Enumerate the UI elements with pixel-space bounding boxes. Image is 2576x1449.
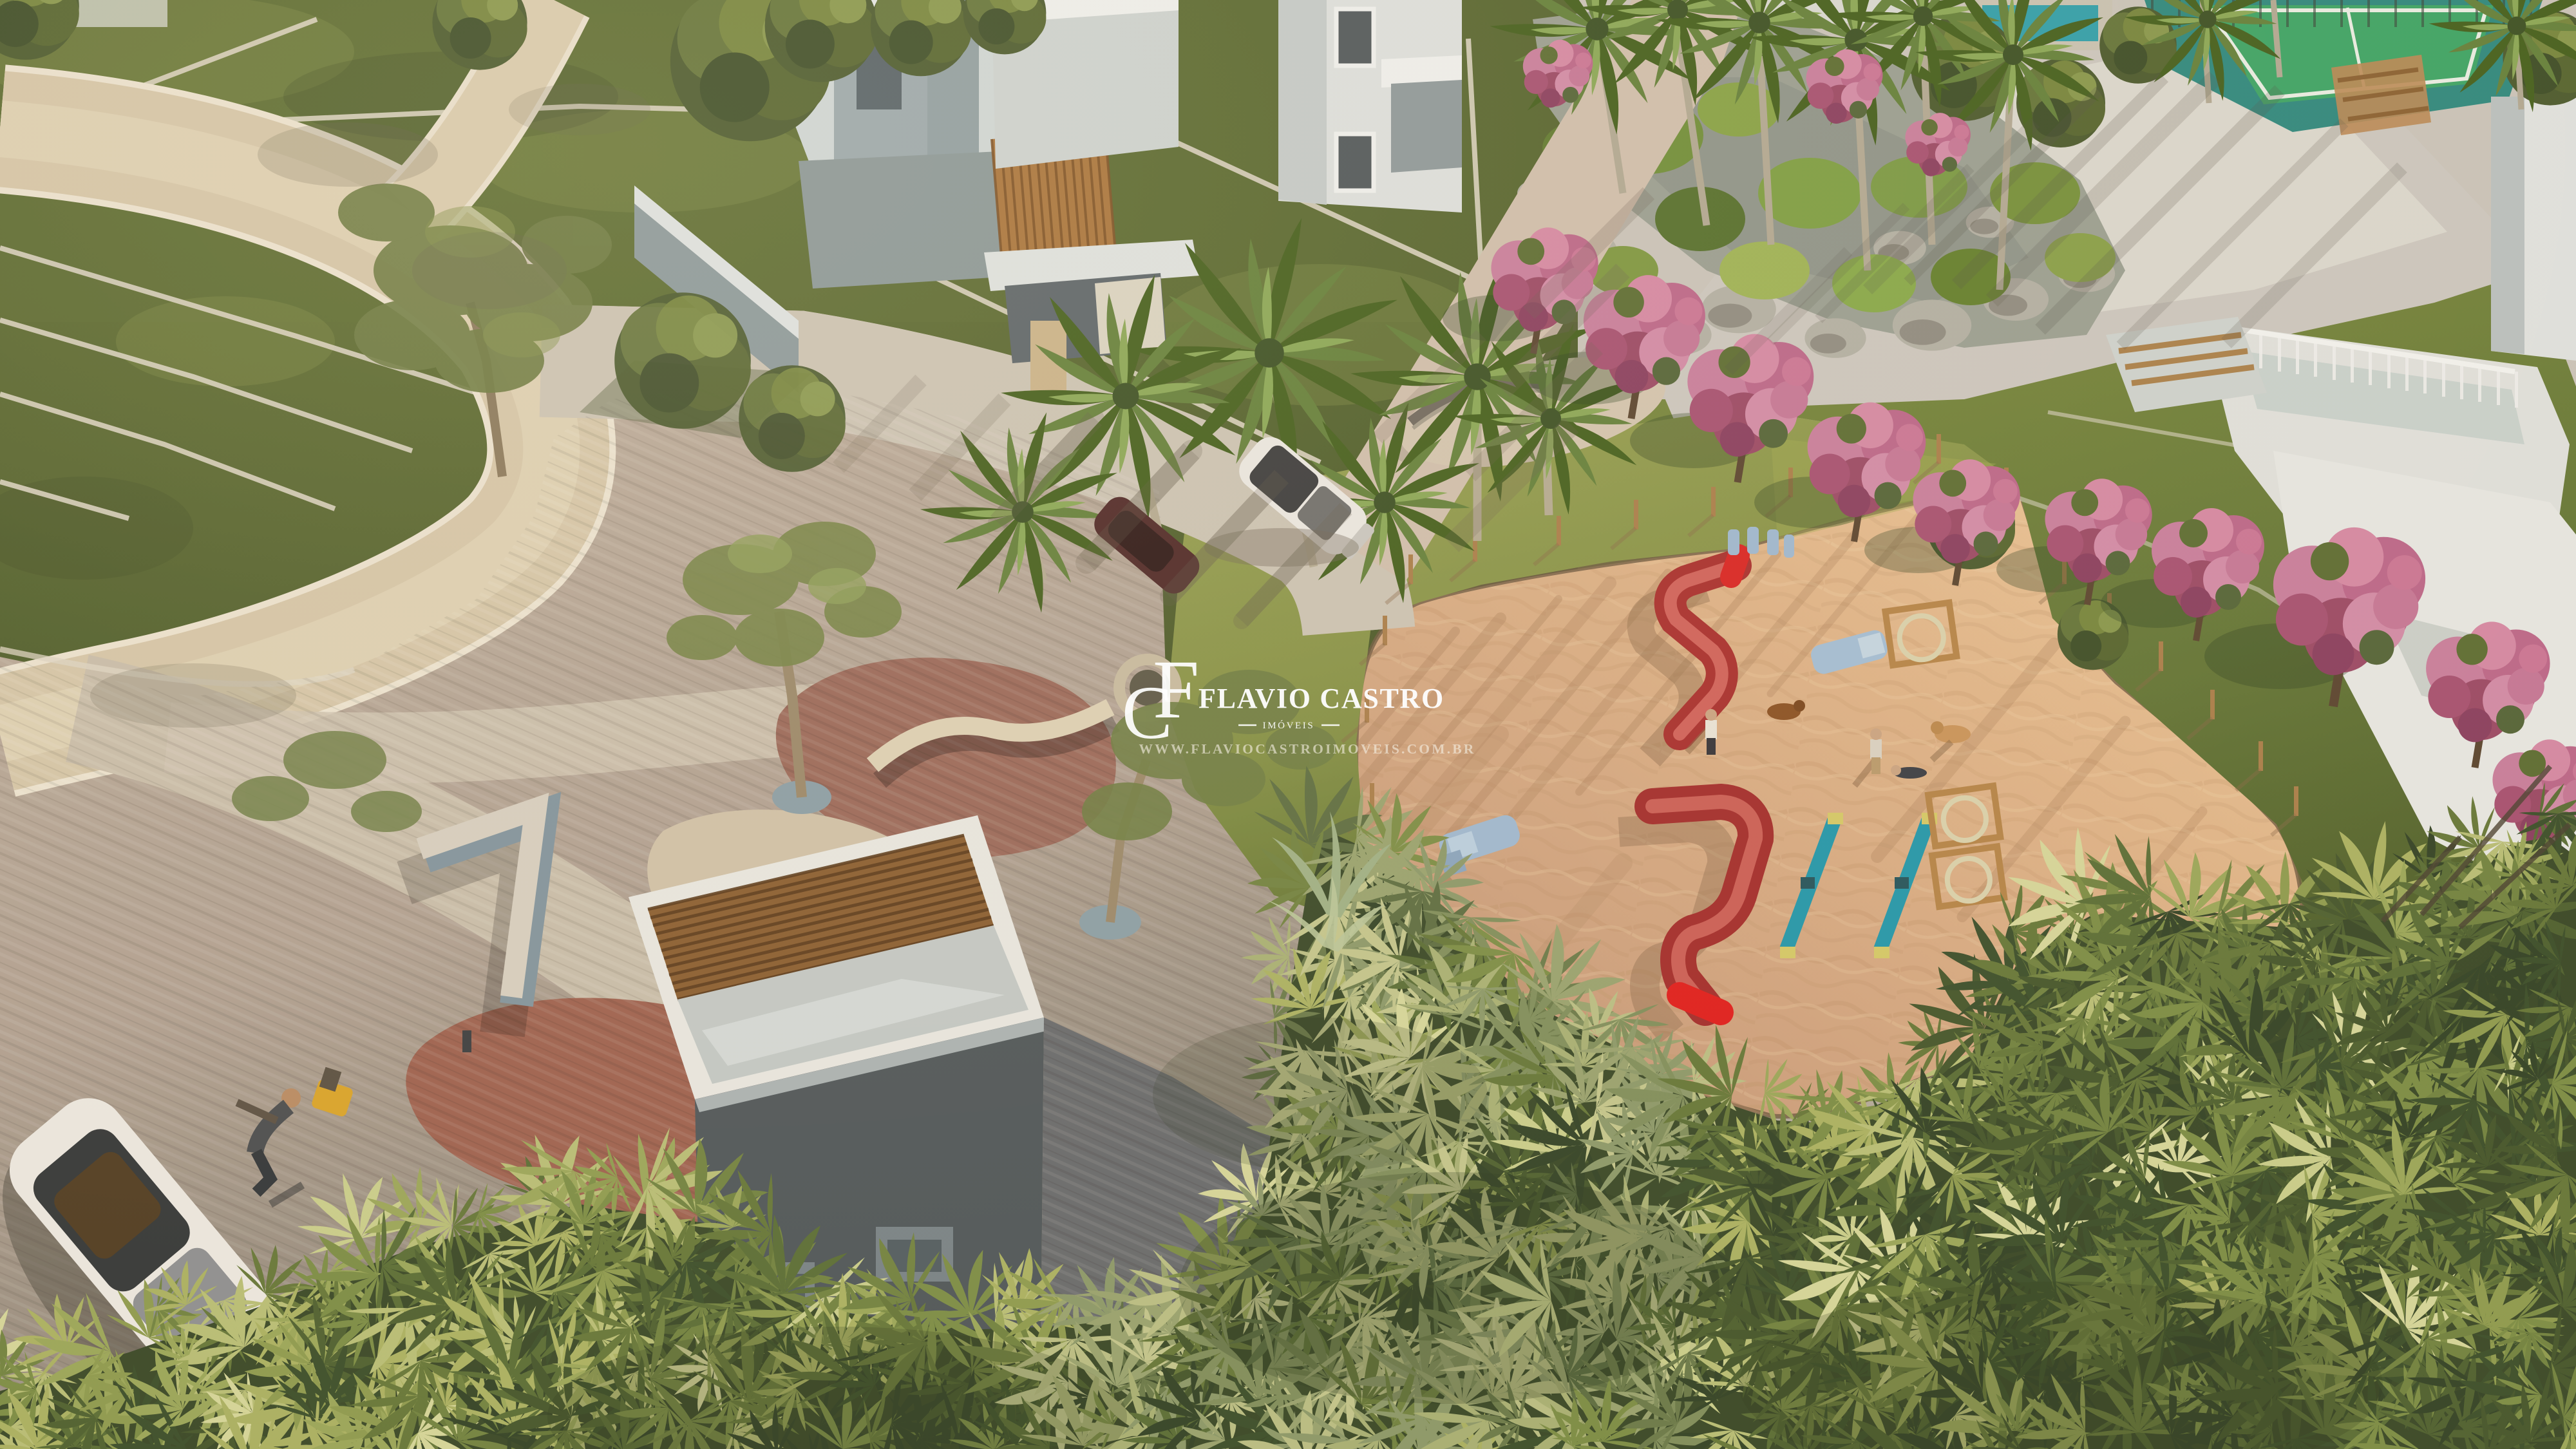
svg-text:WWW.FLAVIOCASTROIMOVEIS.COM.BR: WWW.FLAVIOCASTROIMOVEIS.COM.BR [1139, 741, 1475, 757]
svg-text:F: F [1153, 643, 1199, 736]
svg-text:FLAVIO CASTRO: FLAVIO CASTRO [1198, 683, 1444, 714]
svg-text:IMÓVEIS: IMÓVEIS [1263, 720, 1315, 731]
